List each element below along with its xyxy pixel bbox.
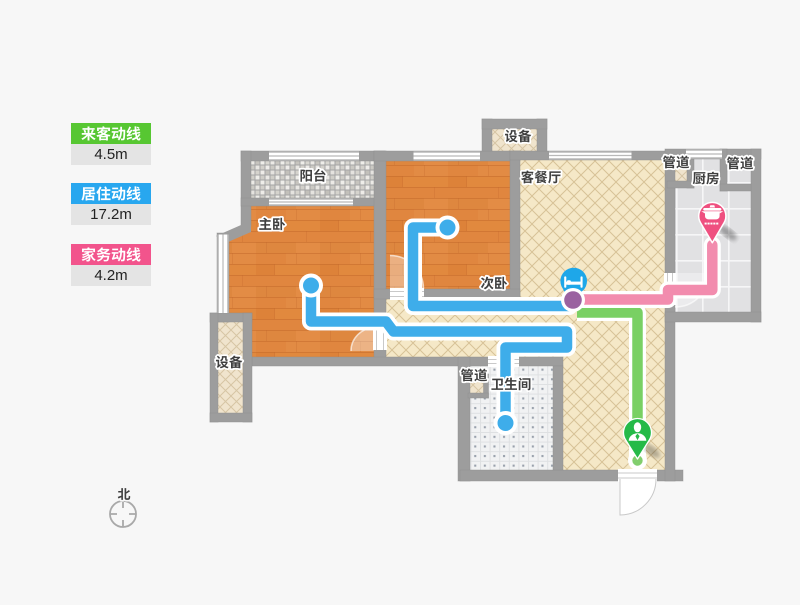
svg-text:4.2m: 4.2m — [94, 267, 127, 284]
svg-text:17.2m: 17.2m — [90, 206, 132, 223]
svg-text:4.5m: 4.5m — [94, 146, 127, 163]
